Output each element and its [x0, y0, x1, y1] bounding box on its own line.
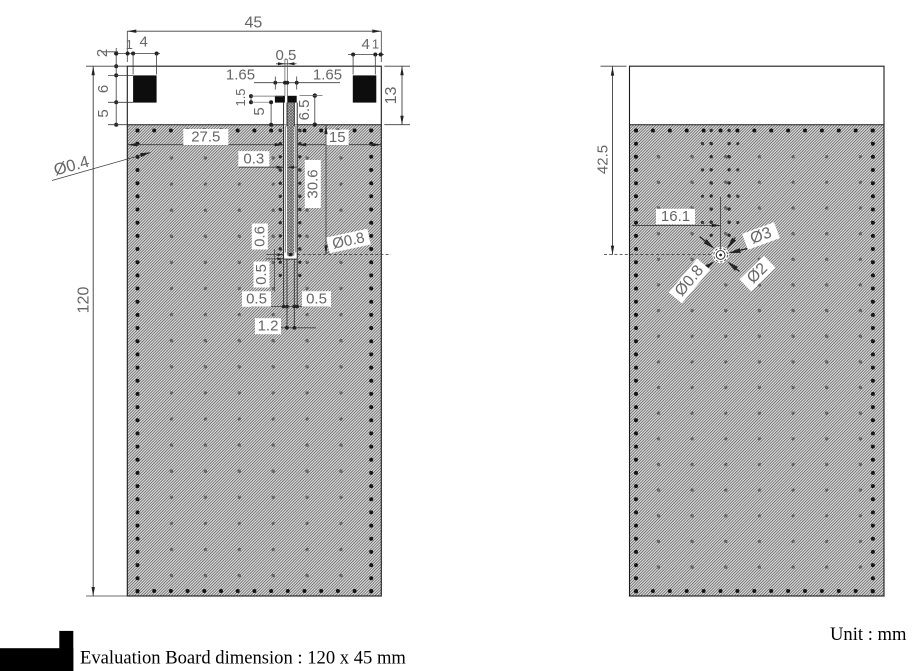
svg-text:1.2: 1.2	[258, 318, 279, 335]
svg-text:1.65: 1.65	[226, 66, 255, 83]
svg-text:1: 1	[372, 37, 379, 52]
svg-text:0.5: 0.5	[275, 47, 296, 64]
svg-text:1.65: 1.65	[313, 66, 342, 83]
svg-text:2: 2	[94, 49, 111, 57]
svg-text:0.5: 0.5	[246, 291, 267, 308]
svg-text:4: 4	[362, 36, 370, 53]
svg-text:5: 5	[251, 107, 268, 115]
svg-text:6.5: 6.5	[296, 100, 313, 121]
svg-text:15: 15	[329, 129, 346, 146]
svg-text:16.1: 16.1	[661, 208, 690, 225]
svg-text:4: 4	[140, 34, 148, 51]
svg-text:42.5: 42.5	[595, 145, 612, 174]
svg-text:120: 120	[76, 287, 93, 314]
svg-text:30.6: 30.6	[304, 169, 321, 198]
svg-text:Unit : mm: Unit : mm	[830, 624, 907, 645]
svg-text:13: 13	[383, 87, 400, 105]
svg-text:Evaluation Board dimension : 1: Evaluation Board dimension : 120 x 45 mm	[80, 648, 406, 669]
svg-text:5: 5	[95, 109, 112, 117]
svg-text:45: 45	[245, 15, 263, 32]
svg-text:0.5: 0.5	[306, 291, 327, 308]
svg-text:6: 6	[95, 85, 112, 93]
svg-text:0.6: 0.6	[251, 226, 268, 247]
svg-text:1: 1	[126, 37, 133, 52]
svg-text:1.5: 1.5	[233, 88, 248, 106]
svg-text:0.3: 0.3	[243, 150, 264, 167]
svg-text:27.5: 27.5	[191, 129, 220, 146]
svg-text:0.5: 0.5	[253, 264, 270, 285]
